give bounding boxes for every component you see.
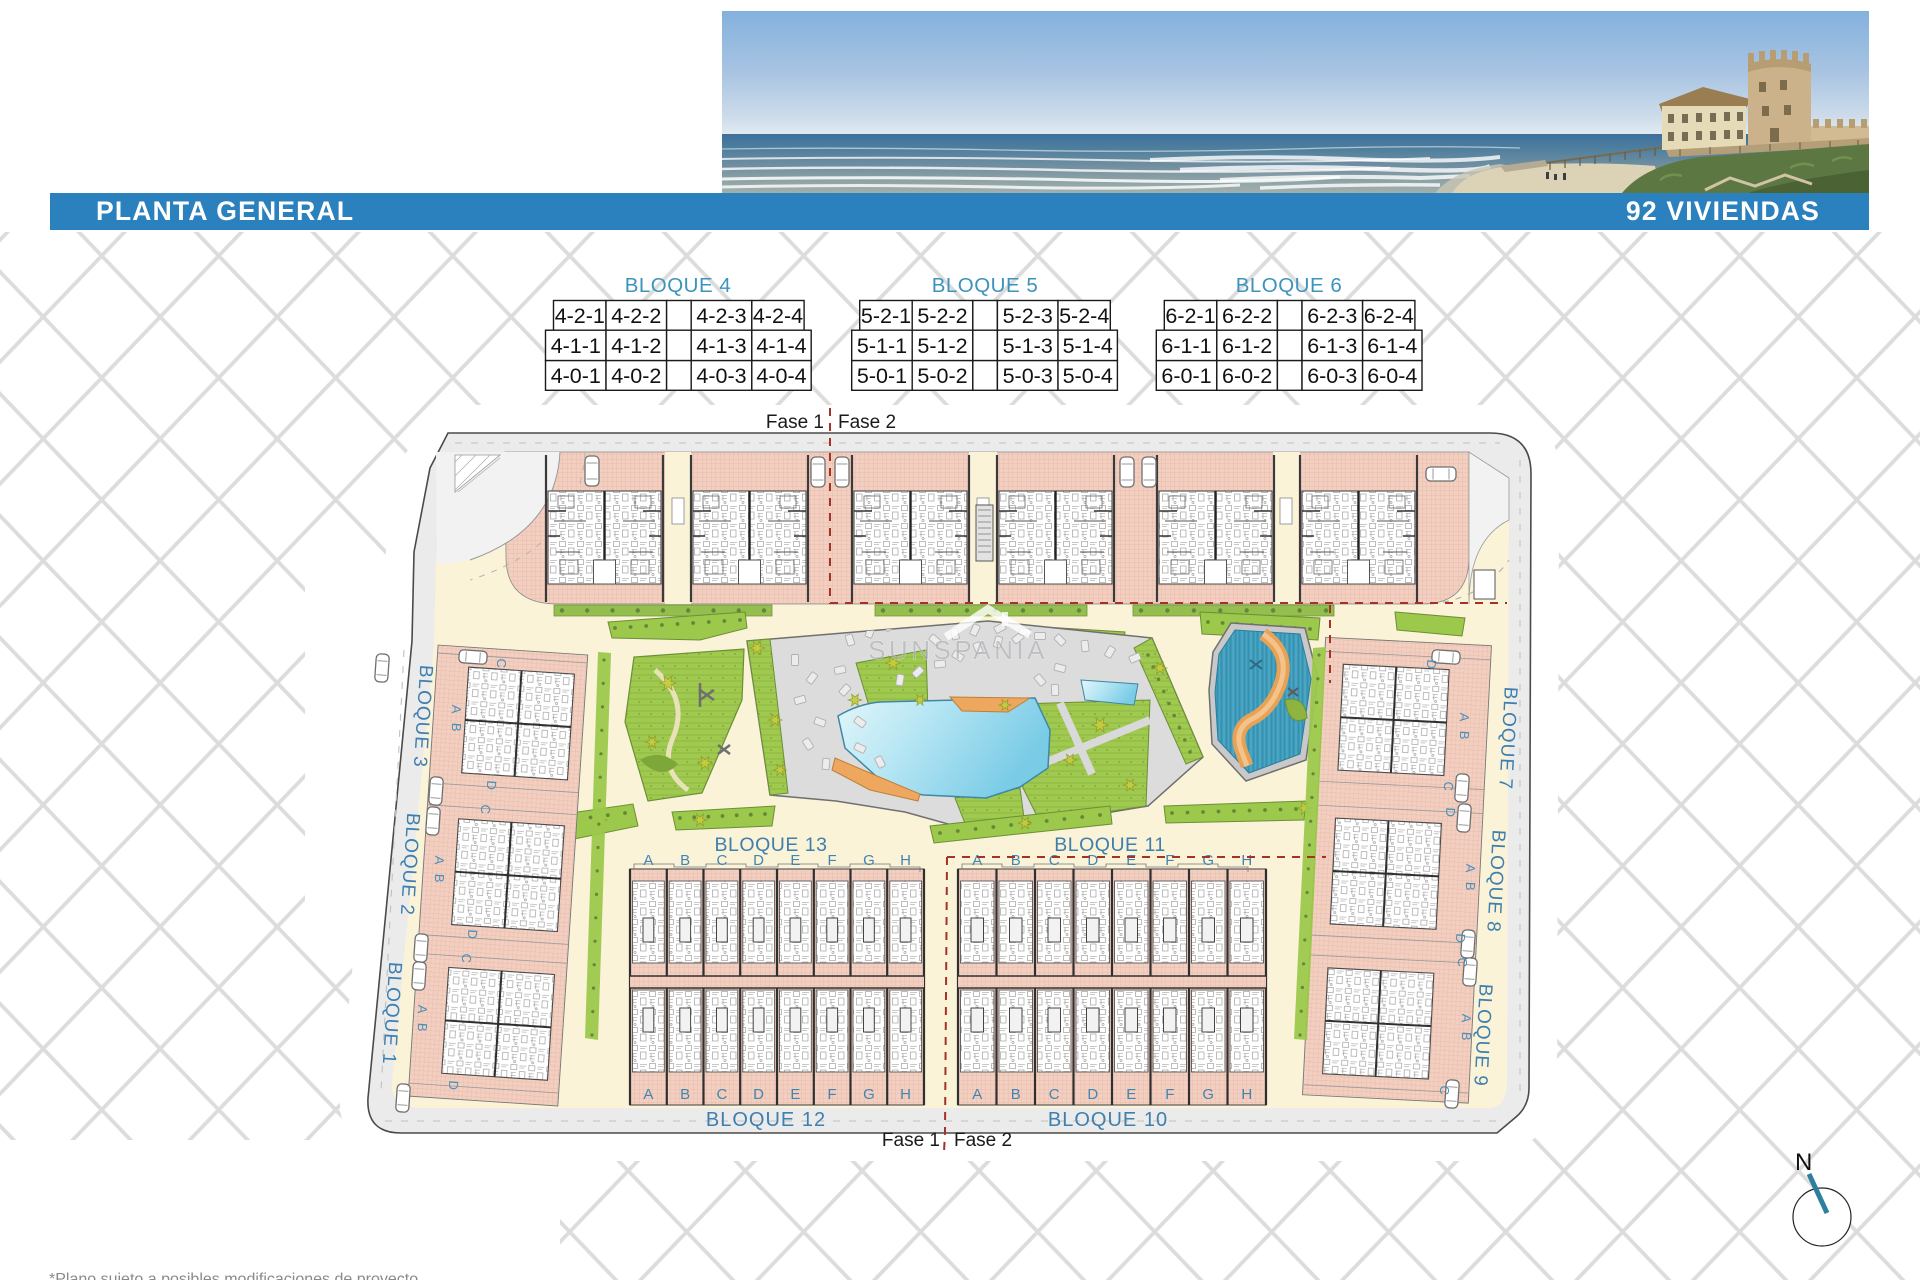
svg-text:D: D [1453,933,1469,943]
svg-text:5-1-3: 5-1-3 [1003,334,1053,358]
svg-text:5-2-2: 5-2-2 [917,304,967,328]
svg-text:6-1-3: 6-1-3 [1307,334,1357,358]
svg-text:A: A [972,852,982,869]
svg-text:D: D [1087,852,1098,869]
svg-text:5-2-4: 5-2-4 [1059,304,1109,328]
svg-text:E: E [790,1086,800,1103]
svg-text:BLOQUE 11: BLOQUE 11 [1054,834,1165,856]
svg-text:4-2-1: 4-2-1 [555,304,605,328]
svg-text:6-2-2: 6-2-2 [1222,304,1272,328]
svg-text:Fase 2: Fase 2 [954,1130,1012,1151]
svg-text:C: C [478,804,494,814]
svg-text:B: B [1011,1086,1021,1103]
svg-text:C: C [1455,957,1471,967]
svg-text:6-2-1: 6-2-1 [1165,304,1215,328]
svg-text:4-1-1: 4-1-1 [551,334,601,358]
svg-text:5-0-3: 5-0-3 [1003,364,1053,388]
svg-text:A: A [643,1086,653,1103]
svg-text:A: A [1463,863,1479,873]
svg-text:C: C [716,1086,727,1103]
svg-text:A: A [449,704,465,714]
svg-text:D: D [753,1086,764,1103]
svg-text:D: D [1087,1086,1098,1103]
svg-text:B: B [680,852,690,869]
svg-text:5-0-2: 5-0-2 [917,364,967,388]
svg-text:C: C [1437,1085,1453,1095]
svg-text:C: C [1441,781,1457,791]
svg-text:D: D [1424,659,1440,669]
svg-text:B: B [432,873,448,883]
svg-text:C: C [494,658,510,668]
svg-text:4-0-1: 4-0-1 [551,364,601,388]
svg-text:5-1-1: 5-1-1 [857,334,907,358]
svg-text:6-2-4: 6-2-4 [1364,304,1414,328]
svg-text:PLANTA GENERAL: PLANTA GENERAL [96,196,354,226]
svg-text:4-2-3: 4-2-3 [696,304,746,328]
svg-text:*Plano sujeto a posibles modif: *Plano sujeto a posibles modificaciones … [49,1271,418,1280]
svg-text:Fase 1: Fase 1 [882,1130,940,1151]
svg-text:C: C [1049,1086,1060,1103]
svg-text:4-2-4: 4-2-4 [753,304,803,328]
svg-text:H: H [900,1086,911,1103]
svg-text:4-1-4: 4-1-4 [756,334,806,358]
svg-text:A: A [1459,1013,1475,1023]
svg-text:G: G [1202,852,1214,869]
svg-text:F: F [828,1086,837,1103]
svg-text:6-1-4: 6-1-4 [1367,334,1417,358]
svg-text:Fase 2: Fase 2 [838,412,896,433]
svg-text:BLOQUE 5: BLOQUE 5 [932,274,1039,297]
svg-text:F: F [1165,1086,1174,1103]
svg-text:B: B [415,1022,431,1032]
svg-text:D: D [465,929,481,939]
svg-text:5-1-2: 5-1-2 [917,334,967,358]
svg-text:G: G [863,1086,875,1103]
svg-text:6-0-2: 6-0-2 [1222,364,1272,388]
svg-text:D: D [1443,807,1459,817]
svg-text:4-0-2: 4-0-2 [611,364,661,388]
svg-text:G: G [863,852,875,869]
svg-text:C: C [716,852,727,869]
svg-text:Fase 1: Fase 1 [766,412,824,433]
svg-text:4-2-2: 4-2-2 [611,304,661,328]
svg-text:BLOQUE 12: BLOQUE 12 [706,1109,826,1131]
svg-text:5-0-4: 5-0-4 [1063,364,1113,388]
svg-text:F: F [828,852,837,869]
svg-text:6-1-1: 6-1-1 [1161,334,1211,358]
svg-text:BLOQUE 4: BLOQUE 4 [625,274,732,297]
svg-text:D: D [484,780,500,790]
svg-text:4-1-3: 4-1-3 [696,334,746,358]
svg-text:4-0-4: 4-0-4 [756,364,806,388]
svg-text:4-0-3: 4-0-3 [696,364,746,388]
svg-text:6-1-2: 6-1-2 [1222,334,1272,358]
svg-text:5-2-1: 5-2-1 [861,304,911,328]
svg-text:C: C [459,953,475,963]
svg-text:D: D [753,852,764,869]
svg-text:H: H [900,852,911,869]
svg-text:6-2-3: 6-2-3 [1307,304,1357,328]
svg-text:5-0-1: 5-0-1 [857,364,907,388]
svg-text:B: B [1457,730,1473,740]
svg-text:A: A [972,1086,982,1103]
svg-text:G: G [1202,1086,1214,1103]
svg-text:B: B [680,1086,690,1103]
svg-text:E: E [1126,852,1136,869]
svg-text:A: A [643,852,653,869]
svg-text:E: E [790,852,800,869]
svg-text:A: A [415,1004,431,1014]
svg-text:H: H [1241,852,1252,869]
svg-text:B: B [1463,881,1479,891]
svg-text:C: C [1049,852,1060,869]
svg-text:B: B [449,722,465,732]
svg-text:N: N [1795,1149,1812,1176]
svg-text:F: F [1165,852,1174,869]
svg-text:E: E [1126,1086,1136,1103]
svg-text:H: H [1241,1086,1252,1103]
svg-text:5-2-3: 5-2-3 [1003,304,1053,328]
svg-text:BLOQUE 6: BLOQUE 6 [1236,274,1343,297]
svg-text:4-1-2: 4-1-2 [611,334,661,358]
svg-text:6-0-3: 6-0-3 [1307,364,1357,388]
svg-text:5-1-4: 5-1-4 [1063,334,1113,358]
svg-text:D: D [446,1080,462,1090]
svg-text:A: A [1457,712,1473,722]
svg-text:92 VIVIENDAS: 92 VIVIENDAS [1626,196,1820,226]
svg-text:SUNSPANIA: SUNSPANIA [868,635,1048,665]
svg-text:6-0-4: 6-0-4 [1367,364,1417,388]
svg-text:B: B [1011,852,1021,869]
svg-text:BLOQUE 13: BLOQUE 13 [715,834,828,856]
svg-text:BLOQUE 10: BLOQUE 10 [1048,1109,1168,1131]
svg-text:A: A [432,855,448,865]
svg-text:6-0-1: 6-0-1 [1161,364,1211,388]
